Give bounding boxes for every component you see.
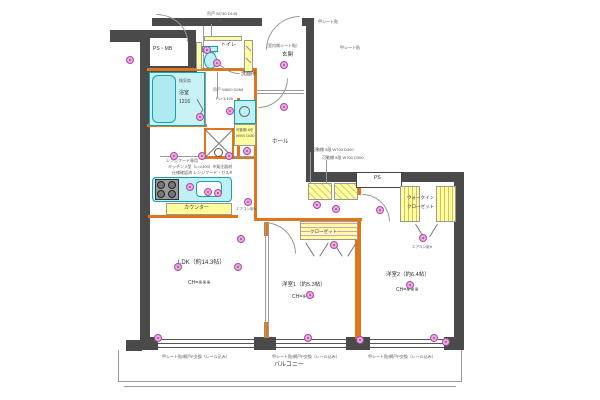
outlet-symbol (332, 205, 340, 213)
stove-burner-2 (168, 181, 176, 189)
outlet-symbol (225, 152, 233, 160)
balcony-edge-right (461, 350, 462, 382)
hall-label: ホール (272, 139, 289, 145)
top-hanging-note: 吊戸 W740 D145 (207, 12, 237, 17)
wall-left-stub (110, 30, 144, 42)
wall-bottom-2 (254, 337, 276, 350)
wall-psmb-right (188, 30, 196, 70)
window-note-ldk: 甲シート貼/網戸P交換（レール込み） (162, 355, 230, 360)
balcony-edge-left (118, 350, 119, 382)
outlet-symbol (203, 46, 211, 54)
toilet-side-cabinet (196, 42, 202, 70)
storage-note-1: 可動棚 4段 (236, 128, 253, 132)
psmb-label: PS・MB (153, 47, 172, 53)
outlet-symbol (330, 241, 338, 249)
orange-wall-counter (148, 215, 238, 218)
washer-drain (214, 148, 223, 157)
window-note-bed1: 甲シート貼/網戸P交換（レール込み） (272, 355, 340, 360)
window-ldk (158, 339, 254, 348)
outlet-symbol (198, 152, 206, 160)
top-right-sheet-note: 甲シート貼 (318, 20, 338, 25)
storage-note-2: W900 D450 (236, 134, 254, 138)
outlet-symbol (213, 59, 221, 67)
ldk-label: LDK（約14.3帖） (178, 260, 225, 267)
washroom-hanging-note: 吊戸 W600 D265 (213, 88, 243, 93)
corridor-shelf-2 (334, 183, 358, 200)
balcony-rail-2 (124, 386, 456, 387)
counter-label: カウンター (184, 206, 209, 212)
outlet-symbol (214, 189, 222, 197)
entrance-label: 玄関 (282, 52, 293, 58)
outlet-symbol (376, 206, 384, 214)
vanity-basin (239, 106, 250, 117)
outlet-symbol (237, 235, 245, 243)
washroom-fl-note: FL+1/100 (216, 97, 233, 102)
corridor-shelf-1 (308, 183, 332, 200)
right-sheet-note: 甲シート貼 (340, 46, 360, 51)
bedroom2-label: 洋室2（約6.4帖） (386, 272, 430, 278)
shelf-note-2: 可動棚 5段 W700 D300 (322, 156, 364, 161)
top-note-leader (211, 24, 212, 36)
outlet-symbol (406, 281, 414, 289)
outlet-symbol (170, 152, 178, 160)
ps-label: PS (374, 176, 381, 182)
closet-door-w2 (319, 242, 328, 256)
toilet-label: トイレ (221, 43, 236, 49)
ldk-ch-label: CH=※※※ (188, 281, 211, 287)
outlet-symbol (419, 234, 427, 242)
toilet-hanging-cabinet (204, 36, 242, 41)
stove-burner-3 (157, 190, 165, 198)
balcony-rail-1 (118, 381, 462, 382)
outlet-symbol (243, 147, 251, 155)
bathroom-vent-note: 換気扇 (179, 79, 191, 84)
bathtub (152, 75, 176, 123)
balcony-label: バルコニー (274, 362, 304, 369)
aircon-note-1: エアコン用※ (236, 207, 256, 211)
bedroom1-label: 洋室1（約5.3帖） (282, 282, 326, 288)
floor-plan: PS・MB 換気扇 浴室 1216 トイレ （室内側シート貼） 玄関 ホール 洗… (0, 0, 600, 400)
bathroom-label: 浴室 (179, 91, 189, 97)
closet-label: クローゼット (310, 230, 337, 235)
outlet-symbol (126, 56, 134, 64)
outlet-symbol (174, 263, 182, 271)
outlet-symbol (204, 188, 212, 196)
wall-bath-right (205, 72, 206, 124)
bathroom-size-label: 1216 (179, 100, 190, 106)
outlet-symbol (356, 336, 364, 344)
outlet-symbol (313, 201, 321, 209)
wall-wash-left (217, 72, 218, 98)
outlet-symbol (280, 61, 288, 69)
stove-burner-4 (168, 190, 176, 198)
washroom-label: 洗面所 (241, 72, 256, 78)
outlet-symbol (304, 334, 312, 342)
wic-right (436, 186, 456, 222)
outlet-symbol (234, 263, 242, 271)
outlet-symbol (226, 107, 234, 115)
shelf-leader-2 (326, 160, 327, 183)
outlet-symbol (442, 338, 450, 346)
top-sheet-note: 甲シート貼 (202, 19, 222, 24)
window-note-bed2: 甲シート貼/網戸P交換（レール込み） (368, 355, 436, 360)
outlet-symbol (306, 291, 314, 299)
outlet-symbol (154, 334, 162, 342)
kitchen-note-3: 仕様確認済 レンジフード・ガス※ (172, 171, 232, 176)
closet-door-w1 (305, 242, 314, 256)
entrance-inner-note: （室内側シート貼） (264, 44, 300, 49)
bedroom2-ch-label: CH=※※※ (396, 288, 419, 294)
wic-label-2: クローゼット (407, 205, 434, 210)
outlet-symbol (186, 183, 194, 191)
outlet-symbol (280, 103, 288, 111)
wall-bottom-left-corner (126, 340, 142, 351)
kitchen-note-2: キッチン 2型（L=2400）※発注器材 (168, 165, 232, 170)
wic-door-v2 (429, 224, 438, 237)
aircon-note-2: エアコン用※ (412, 245, 432, 249)
wic-label-1: ウォークイン (407, 196, 434, 201)
outlet-symbol (244, 198, 252, 206)
outlet-symbol (430, 334, 438, 342)
shelf-note-1: 可動棚 5段 W700 D300 (312, 148, 354, 153)
outlet-symbol (196, 113, 204, 121)
stove-burner-1 (157, 181, 165, 189)
shelf-leader-1 (310, 152, 311, 183)
bedroom1-door-arc (264, 222, 296, 254)
kitchen-note-1: レンジフード専用 (166, 159, 198, 164)
